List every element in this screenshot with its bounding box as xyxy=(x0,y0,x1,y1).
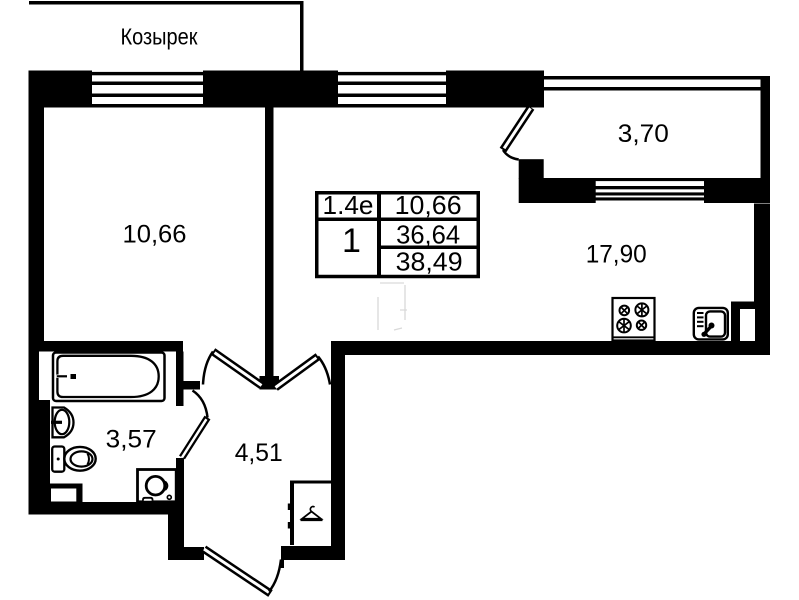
svg-text:36,64: 36,64 xyxy=(396,220,460,250)
svg-text:10,66: 10,66 xyxy=(395,190,462,220)
svg-text:1: 1 xyxy=(342,222,361,260)
svg-text:Козырек: Козырек xyxy=(121,23,199,49)
svg-text:3,70: 3,70 xyxy=(618,120,669,148)
svg-text:1.4е: 1.4е xyxy=(323,190,374,220)
svg-text:17,90: 17,90 xyxy=(586,240,647,268)
svg-text:38,49: 38,49 xyxy=(396,247,463,277)
svg-text:10,66: 10,66 xyxy=(123,221,187,249)
svg-text:3,57: 3,57 xyxy=(106,426,157,454)
svg-text:4,51: 4,51 xyxy=(235,439,283,467)
